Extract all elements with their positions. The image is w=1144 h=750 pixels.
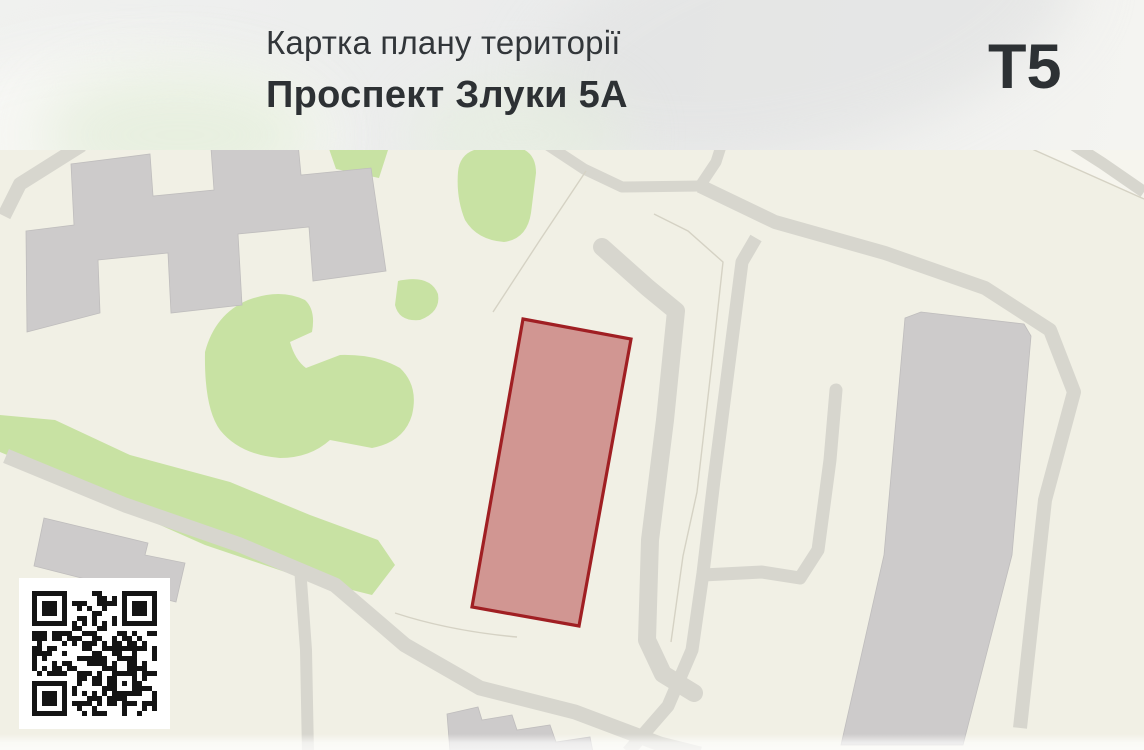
map-canvas — [0, 150, 1144, 750]
territory-plan-card: Картка плану території Проспект Злуки 5А… — [0, 0, 1144, 750]
qr-code — [19, 578, 170, 729]
address-subtitle: Проспект Злуки 5А — [266, 74, 628, 117]
qr-code-image — [32, 591, 157, 716]
map-svg — [0, 150, 1144, 750]
territory-code-badge: T5 — [988, 36, 1062, 99]
map-bottom-fade — [0, 734, 1144, 750]
header: Картка плану території Проспект Злуки 5А… — [0, 0, 1144, 150]
page-title: Картка плану території — [266, 24, 621, 62]
